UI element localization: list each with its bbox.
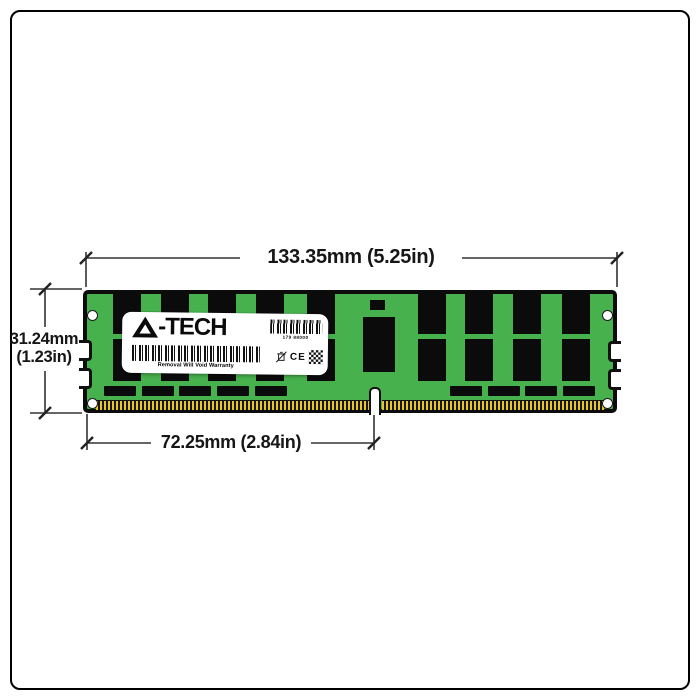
ce-mark: CE	[290, 351, 306, 362]
small-component-chip	[525, 386, 557, 396]
certification-marks: CE	[276, 350, 323, 365]
mounting-hole	[602, 310, 613, 321]
warranty-text: Removal Will Void Warranty	[132, 362, 260, 370]
serial-number: 179 88000	[268, 335, 323, 341]
product-label: -TECH 179 88000 Removal Will Void Warran…	[122, 312, 329, 376]
memory-chip-column	[418, 293, 446, 381]
atech-logo-text: -TECH	[158, 316, 227, 339]
dimension-height-mm: 31.24mm	[2, 330, 86, 348]
memory-chip	[465, 293, 493, 334]
memory-chip	[562, 293, 590, 334]
mounting-hole	[87, 310, 98, 321]
memory-chip	[513, 293, 541, 334]
edge-notch	[608, 369, 621, 390]
register-chip	[363, 317, 395, 372]
product-image: 133.35mm (5.25in) 31.24mm (1.23in) 72.25…	[0, 0, 700, 700]
small-component-chip	[104, 386, 136, 396]
small-component-chip	[450, 386, 482, 396]
dimension-width-label: 133.35mm (5.25in)	[240, 246, 462, 269]
gold-pins-right	[382, 400, 604, 410]
memory-chip	[418, 339, 446, 381]
memory-chip	[513, 339, 541, 381]
edge-notch	[79, 368, 92, 389]
gold-pins-left	[96, 400, 370, 410]
small-component-chip	[142, 386, 174, 396]
dimension-height-in: (1.23in)	[2, 348, 86, 366]
mounting-hole	[602, 398, 613, 409]
memory-chip	[418, 293, 446, 334]
atech-logo: -TECH	[132, 316, 227, 339]
dimension-height-label: 31.24mm (1.23in)	[2, 330, 86, 367]
qr-code-icon	[309, 350, 323, 364]
barcode-icon	[270, 320, 322, 335]
a-triangle-icon	[132, 316, 158, 338]
edge-notch	[608, 341, 621, 362]
edge-notch	[79, 340, 92, 361]
serial-barcode-block: 179 88000	[268, 320, 323, 341]
memory-chip-column	[513, 293, 541, 381]
memory-chip-column	[465, 293, 493, 381]
memory-chip	[562, 339, 590, 381]
small-component-chip	[488, 386, 520, 396]
key-notch	[369, 387, 381, 415]
small-component-chip	[217, 386, 249, 396]
small-component-chip	[255, 386, 287, 396]
warranty-barcode-block: Removal Will Void Warranty	[132, 345, 260, 370]
small-component-chip	[563, 386, 595, 396]
small-component-chip	[179, 386, 211, 396]
memory-chip-column	[562, 293, 590, 381]
memory-chip	[465, 339, 493, 381]
spd-chip	[370, 300, 385, 310]
memory-module: -TECH 179 88000 Removal Will Void Warran…	[83, 290, 617, 413]
mounting-hole	[87, 398, 98, 409]
dimension-pin-span-label: 72.25mm (2.84in)	[151, 432, 311, 453]
barcode-icon	[132, 345, 260, 363]
weee-bin-icon	[276, 350, 287, 364]
